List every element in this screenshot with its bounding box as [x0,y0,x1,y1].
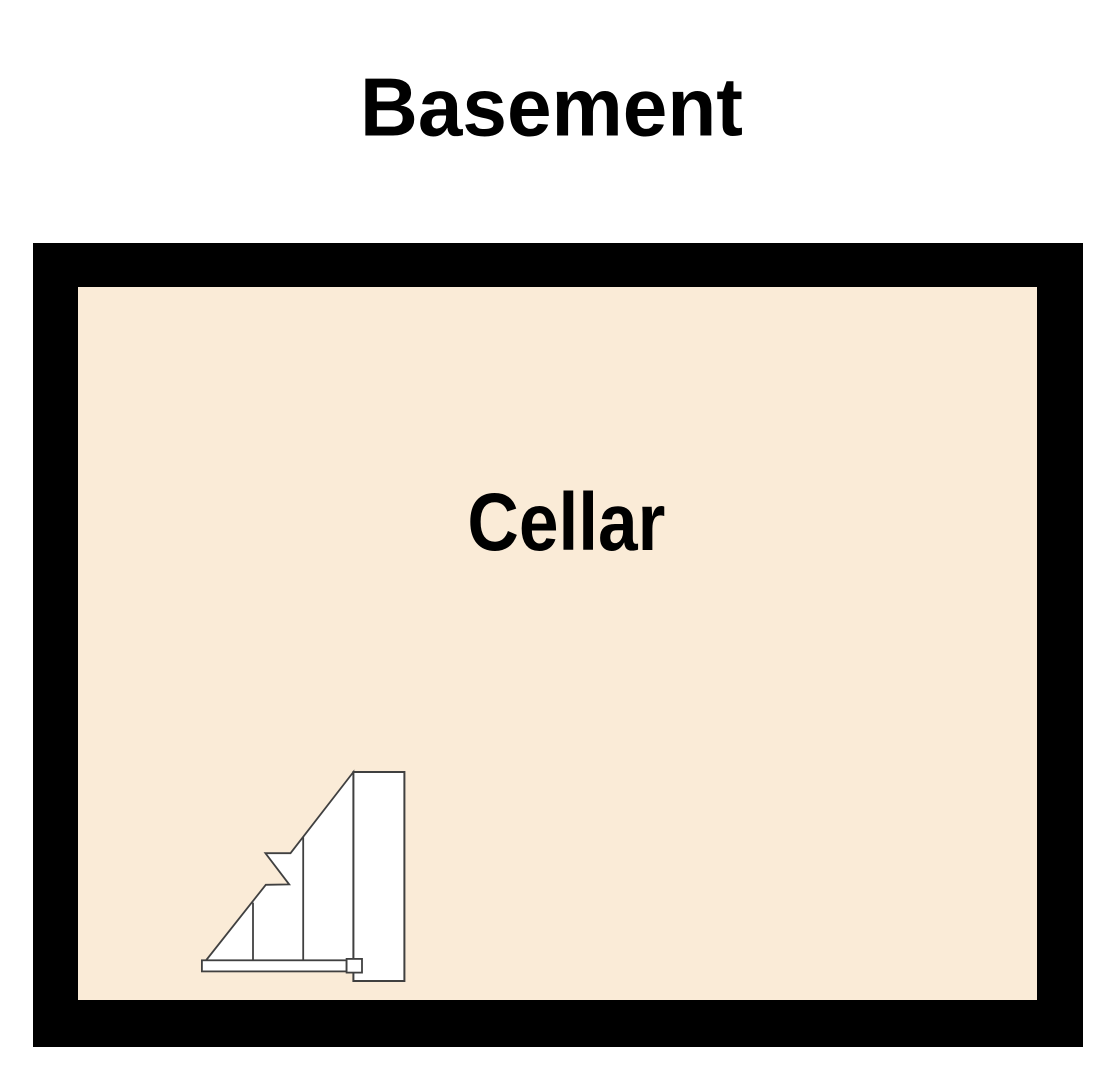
svg-text:Cellar: Cellar [467,477,665,568]
svg-text:Basement: Basement [360,61,743,154]
